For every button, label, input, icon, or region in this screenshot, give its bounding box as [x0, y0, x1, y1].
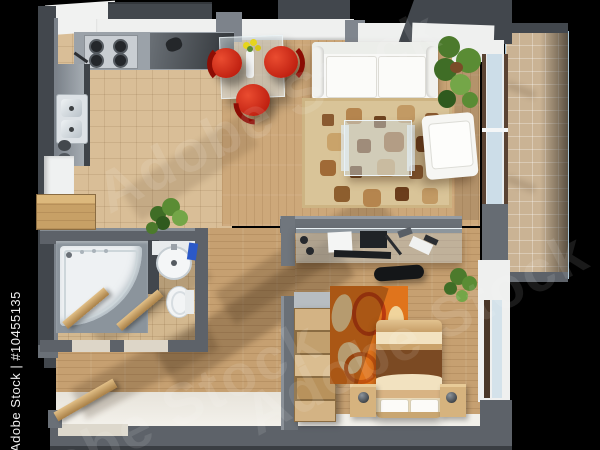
kitchen-cabinet [36, 194, 96, 230]
sofa-armrest [312, 46, 324, 98]
dining-chair [236, 84, 270, 116]
bedroom-window-frame [484, 300, 490, 398]
dining-chair [210, 48, 242, 78]
armchair-cushion [428, 120, 474, 169]
shelf-box [295, 401, 335, 421]
tree-plant [438, 90, 456, 108]
flowers-yellow [255, 45, 261, 51]
tree-pot [450, 62, 463, 73]
sofa-cushion [378, 56, 426, 98]
bedroom-plant [456, 290, 468, 302]
trash-bin [58, 140, 71, 151]
bed [376, 320, 442, 418]
monitor [360, 231, 387, 248]
bed-footboard [376, 320, 442, 332]
balcony-shadow-right [540, 32, 568, 278]
kitchen-appliance [44, 156, 74, 198]
burner-icon [89, 39, 104, 54]
bed-headboard [376, 412, 442, 418]
burner-icon [113, 53, 128, 68]
potted-plant [146, 222, 158, 234]
watermark-side-label: Adobe Stock | #10455135 [8, 252, 23, 450]
dining-chair [264, 46, 298, 78]
bedroom-doorpost [281, 216, 295, 266]
sofa [312, 42, 438, 100]
bedroom-window-glass [492, 300, 502, 398]
window-box-b [278, 0, 350, 19]
shelf-box [295, 355, 335, 376]
bathtub-jet [92, 249, 96, 253]
bathroom-door-gap-1 [72, 340, 110, 352]
coffee-table-glass-panel [341, 125, 349, 171]
kitchen-sink [56, 94, 88, 144]
bedroom-plant [444, 282, 457, 295]
entry-threshold [58, 424, 128, 436]
washbasin-faucet [171, 244, 177, 250]
stock-photo-canvas: Adobe Stock | #10455135 Adobe Stock Adob… [0, 0, 600, 450]
potted-plant [172, 210, 188, 226]
sink-drain [69, 106, 74, 111]
coffee-table [344, 120, 412, 176]
washbasin-drain [171, 260, 177, 266]
washbasin [156, 246, 192, 280]
burner-icon [113, 39, 128, 54]
toilet-tank [185, 290, 194, 314]
bathtub-jet [104, 249, 108, 253]
rug-pattern [322, 114, 334, 126]
sofa-cushion [326, 56, 377, 98]
cabinet-top-face [37, 195, 95, 203]
stove [84, 35, 138, 69]
coffee-table-glass-panel [407, 125, 415, 171]
bedside-lamp [446, 392, 457, 403]
bed-blanket-cream2 [376, 382, 442, 390]
shelf-box [295, 309, 335, 330]
tree-plant [462, 92, 478, 108]
sofa-back [312, 42, 438, 54]
bed-blanket-tan [376, 390, 442, 398]
bathtub-jet [80, 250, 84, 254]
flower-leaf [247, 46, 253, 52]
balcony-bottom-wall [504, 272, 568, 282]
balcony-door-divider [482, 128, 508, 132]
desk-speaker [300, 236, 308, 244]
wall-right-mid [482, 204, 508, 262]
desk-speaker [306, 247, 314, 255]
potted-plant [156, 216, 170, 230]
bedroom-plant [462, 276, 477, 291]
armchair [421, 112, 478, 180]
bathroom-door-gap-2 [124, 340, 168, 352]
flower-vase [246, 50, 254, 78]
balcony-top-frame [504, 23, 568, 33]
wall-left-step [44, 358, 56, 368]
burner-icon [89, 53, 104, 68]
balcony-door [482, 54, 508, 206]
sink-drain [69, 127, 74, 132]
bathtub-faucet [66, 252, 72, 258]
bedside-lamp [358, 392, 369, 403]
